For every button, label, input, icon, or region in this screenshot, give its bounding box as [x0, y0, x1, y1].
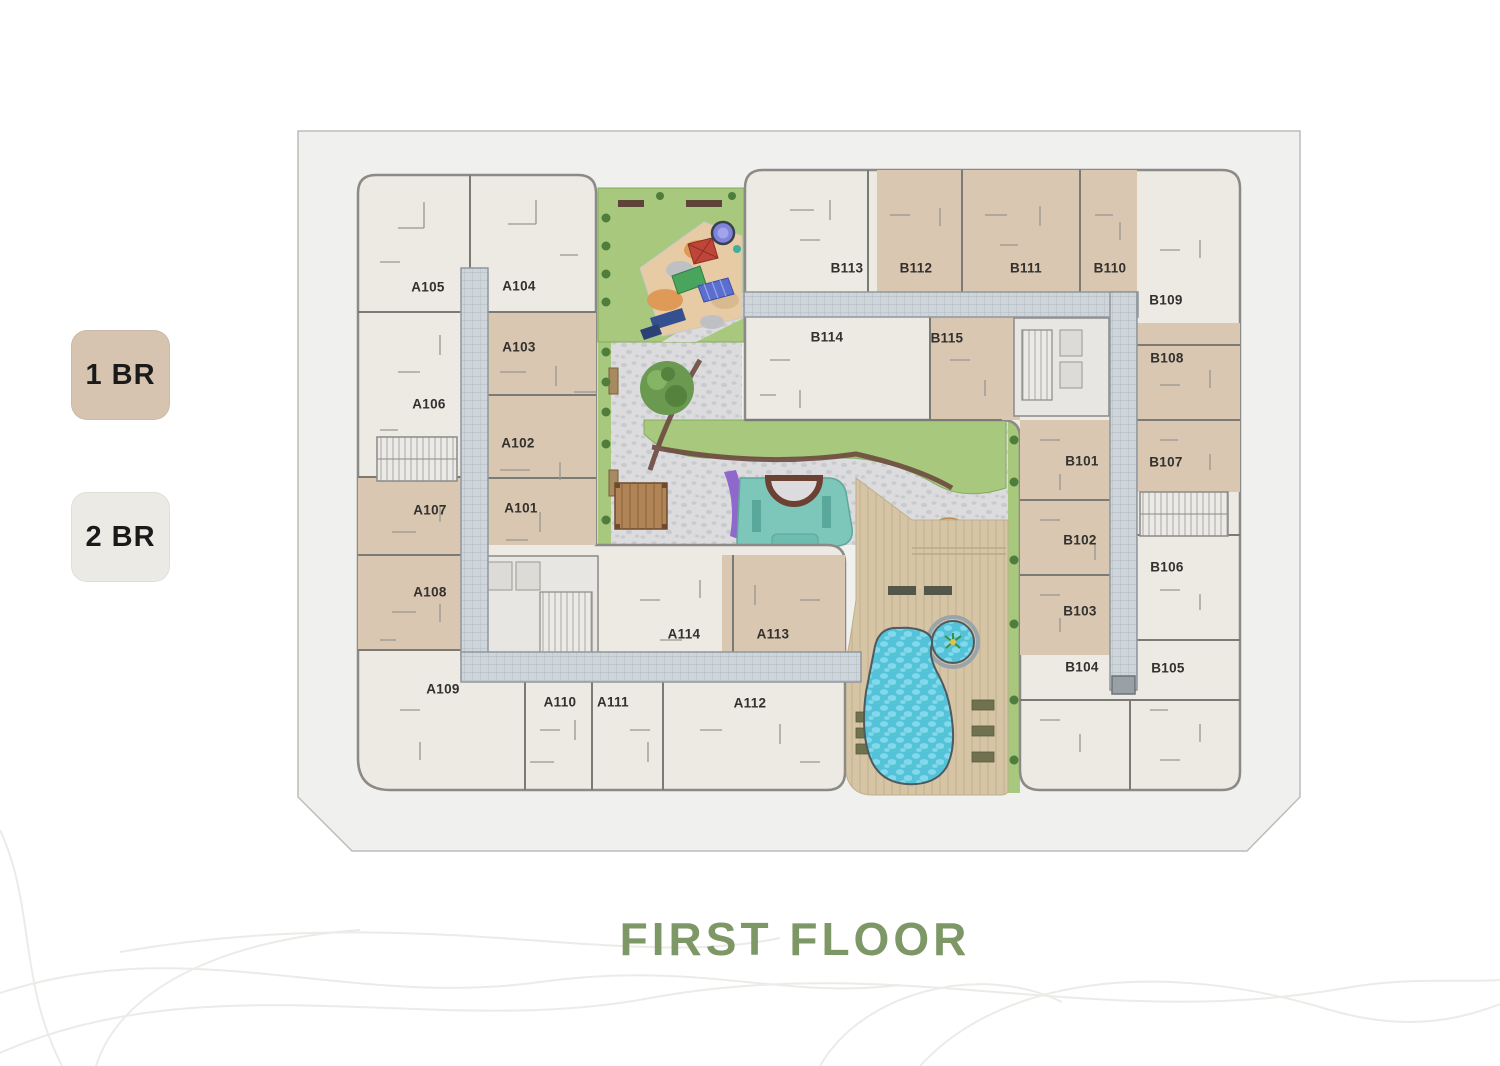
legend: 1 BR2 BR: [71, 330, 171, 654]
pergola-icon: [615, 483, 667, 529]
legend-swatch-2br: 2 BR: [71, 492, 170, 582]
kids-pool-icon: [928, 617, 978, 667]
playground-icon: [598, 188, 744, 342]
tree-icon: [640, 361, 694, 415]
legend-swatch-1br: 1 BR: [71, 330, 170, 420]
floor-plan: [0, 0, 1500, 1066]
page-title: FIRST FLOOR: [620, 912, 971, 966]
legend-label-1br: 1 BR: [85, 359, 155, 392]
legend-label-2br: 2 BR: [85, 521, 155, 554]
floor-plan-page: A105A104A103A106A102A107A101A108A109A110…: [0, 0, 1500, 1066]
